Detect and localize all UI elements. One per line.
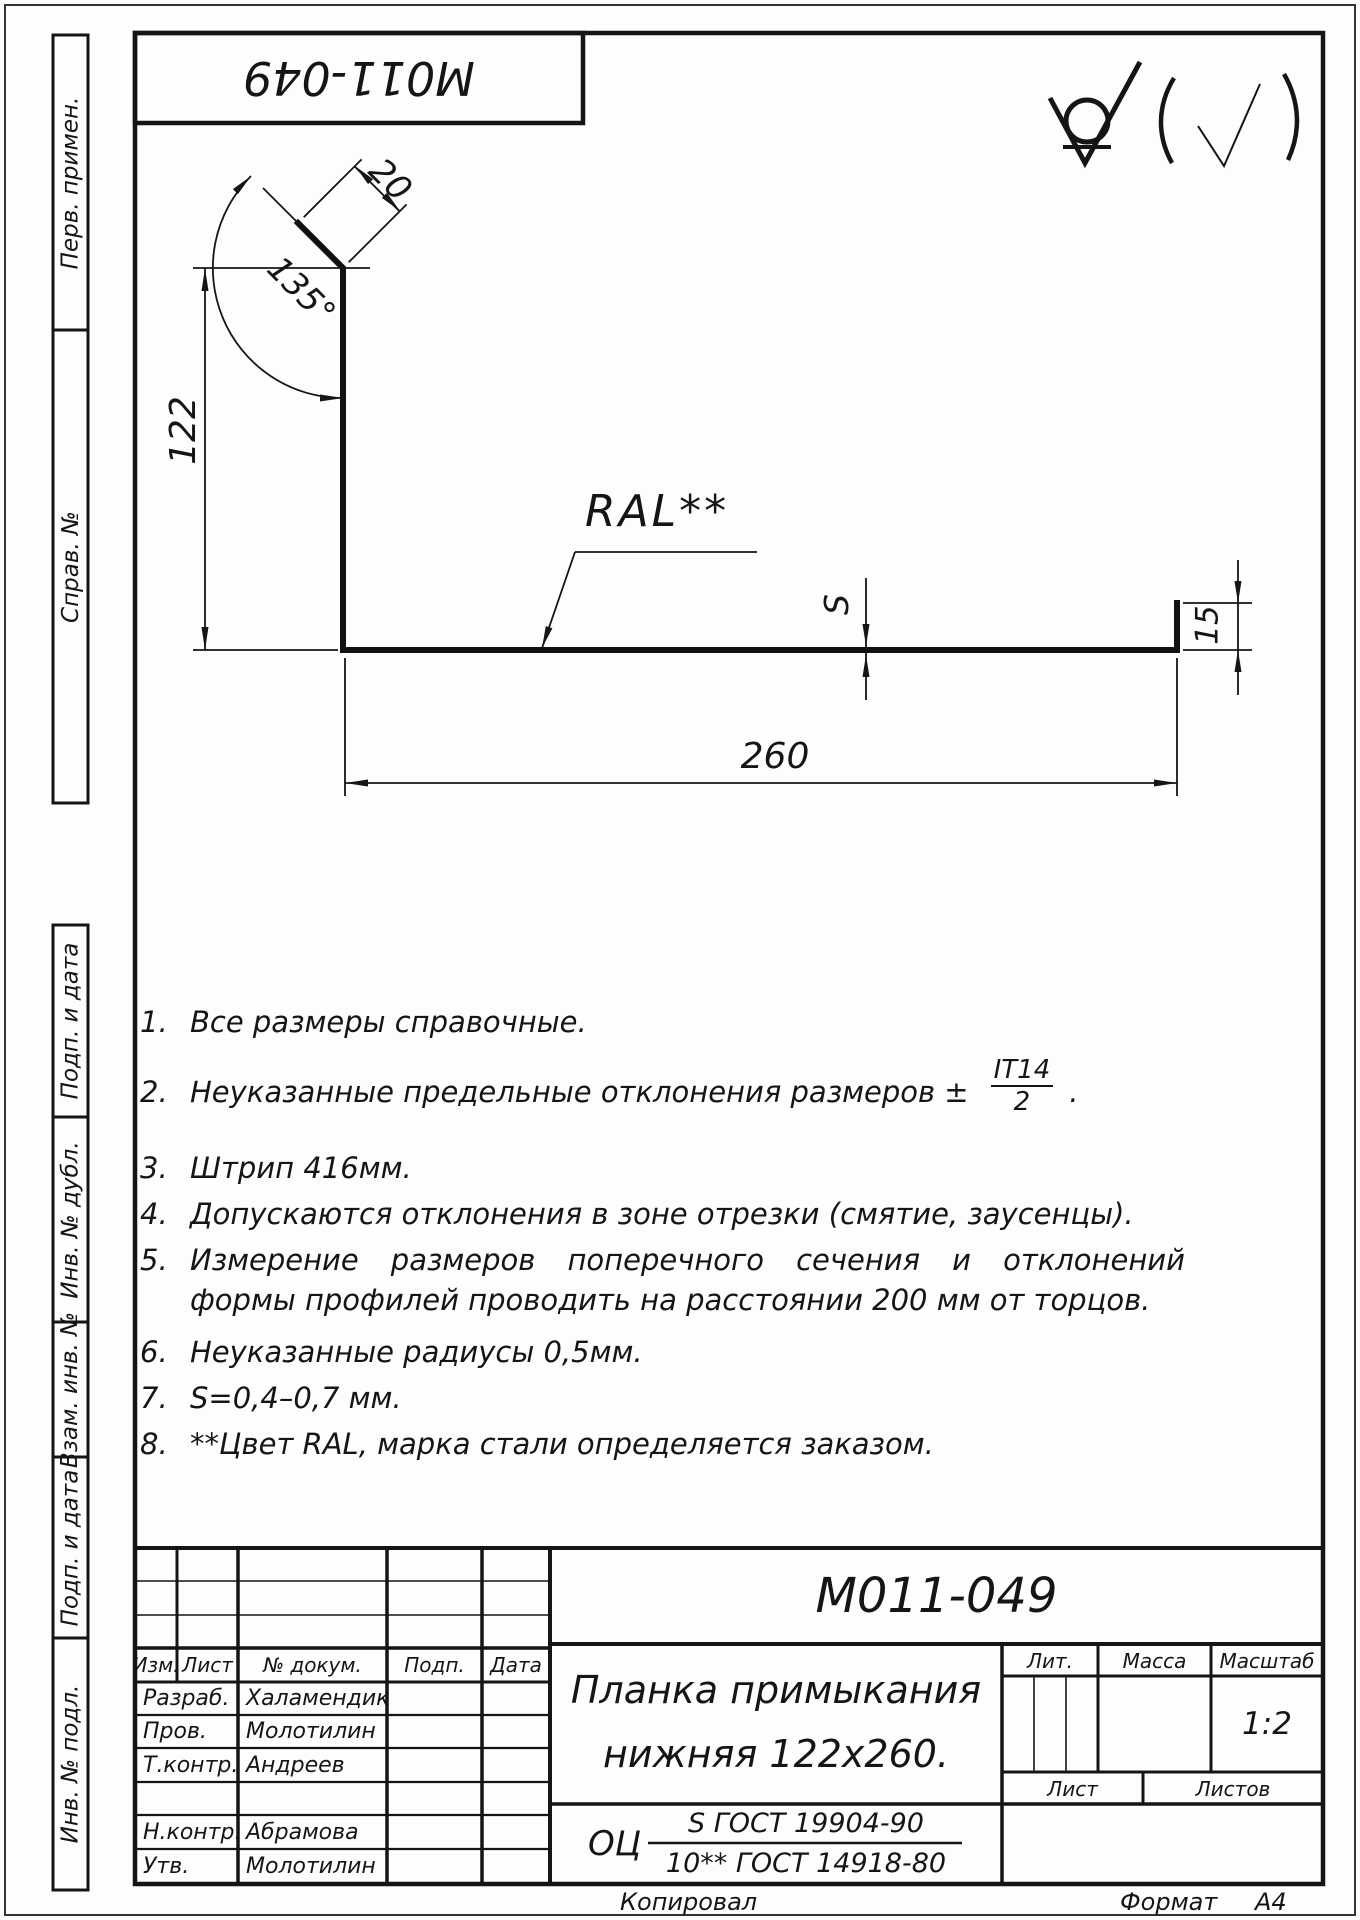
footer-format-value: A4 (1255, 1888, 1287, 1916)
note-1: 1. Все размеры справочные. (140, 1002, 1185, 1042)
dim-122-text: 122 (158, 380, 208, 480)
linework-layer (0, 0, 1360, 1920)
note-1-num: 1. (140, 1002, 174, 1042)
tb-role-2: Т.контр. (143, 1751, 238, 1781)
ral-leader (542, 552, 757, 648)
tb-header-list: Лист (177, 1652, 238, 1678)
note-2-tail: . (1069, 1072, 1078, 1112)
note-2-num: 2. (140, 1072, 174, 1112)
tb-name-5: Молотилин (246, 1852, 376, 1882)
drawing-sheet: M011-049 Перв. примен. Справ. № Подп. и … (0, 0, 1360, 1920)
dim-15-text: 15 (1188, 598, 1228, 652)
note-5-num: 5. (140, 1240, 174, 1280)
tb-header-lit: Лит. (1002, 1648, 1098, 1674)
note-4: 4. Допускаются отклонения в зоне отрезки… (140, 1194, 1185, 1234)
tb-name-2: Андреев (246, 1751, 345, 1781)
note-4-text: Допускаются отклонения в зоне отрезки (с… (190, 1194, 1134, 1234)
side-label-podp-data-1: Подп. и дата (53, 925, 88, 1117)
footer-kopiroval: Копировал (620, 1888, 757, 1916)
tb-header-sheets: Листов (1143, 1776, 1323, 1802)
note-7: 7. S=0,4–0,7 мм. (140, 1378, 1185, 1418)
dim-260-text: 260 (735, 736, 815, 777)
note-3-num: 3. (140, 1148, 174, 1188)
note-7-num: 7. (140, 1378, 174, 1418)
side-label-podp-data-2: Подп. и дата (53, 1457, 88, 1638)
tb-material-numerator: S ГОСТ 19904-90 (650, 1808, 962, 1839)
tb-name-0: Халамендик (246, 1684, 389, 1714)
tb-header-mass: Масса (1098, 1648, 1211, 1674)
note-5: 5. Измерение размеров поперечного сечени… (140, 1240, 1185, 1320)
note-8-text: **Цвет RAL, марка стали определяется зак… (190, 1424, 934, 1464)
tb-role-1: Пров. (143, 1717, 207, 1747)
note-6-num: 6. (140, 1332, 174, 1372)
tb-material-prefix: ОЦ (588, 1824, 641, 1864)
top-stamp-number: M011-049 (135, 33, 583, 123)
tb-header-docno: № докум. (238, 1652, 387, 1678)
tb-header-date: Дата (482, 1652, 550, 1678)
note-8: 8. **Цвет RAL, марка стали определяется … (140, 1424, 1185, 1464)
tb-header-izm: Изм. (135, 1652, 177, 1678)
tb-role-0: Разраб. (143, 1684, 229, 1714)
note-2-text: Неуказанные предельные отклонения размер… (190, 1072, 969, 1112)
tb-title-line2: нижняя 122x260. (550, 1728, 1002, 1780)
dim-s (863, 578, 870, 700)
side-label-perv-primen: Перв. примен. (53, 35, 88, 330)
side-label-vzam-inv: Взам. инв. № (53, 1322, 88, 1457)
note-7-text: S=0,4–0,7 мм. (190, 1378, 402, 1418)
tb-role-5: Утв. (143, 1852, 189, 1882)
dim-s-text: S (816, 580, 856, 628)
ral-label: RAL** (585, 486, 729, 537)
note-1-text: Все размеры справочные. (190, 1002, 587, 1042)
footer-format-label: Формат (1120, 1888, 1217, 1916)
tb-header-sign: Подп. (387, 1652, 482, 1678)
tb-doc-number: M011-049 (550, 1560, 1323, 1632)
note-3-text: Штрип 416мм. (190, 1148, 412, 1188)
side-label-inv-dubl: Инв. № дубл. (53, 1117, 88, 1322)
tb-material-denominator: 10** ГОСТ 14918-80 (650, 1848, 962, 1879)
profile-outline (298, 223, 1177, 650)
note-6-text: Неуказанные радиусы 0,5мм. (190, 1332, 643, 1372)
tb-scale-value: 1:2 (1211, 1702, 1323, 1746)
side-label-sprav-no: Справ. № (53, 330, 88, 803)
tb-header-scale: Масштаб (1211, 1648, 1323, 1674)
note-2: 2. Неуказанные предельные отклонения раз… (140, 1072, 1185, 1134)
tb-title-line1: Планка примыкания (550, 1664, 1002, 1716)
side-label-inv-podl: Инв. № подл. (53, 1638, 88, 1890)
tb-header-sheet: Лист (1002, 1776, 1143, 1802)
note-2-fraction: IT14 2 (991, 1055, 1054, 1117)
note-3: 3. Штрип 416мм. (140, 1148, 1185, 1188)
note-6: 6. Неуказанные радиусы 0,5мм. (140, 1332, 1185, 1372)
note-4-num: 4. (140, 1194, 174, 1234)
tb-role-4: Н.контр. (143, 1818, 241, 1848)
note-5-text: Измерение размеров поперечного сечения и… (190, 1240, 1185, 1320)
roughness-icon (1050, 62, 1297, 166)
tb-name-1: Молотилин (246, 1717, 376, 1747)
tb-name-4: Абрамова (246, 1818, 359, 1848)
note-8-num: 8. (140, 1424, 174, 1464)
